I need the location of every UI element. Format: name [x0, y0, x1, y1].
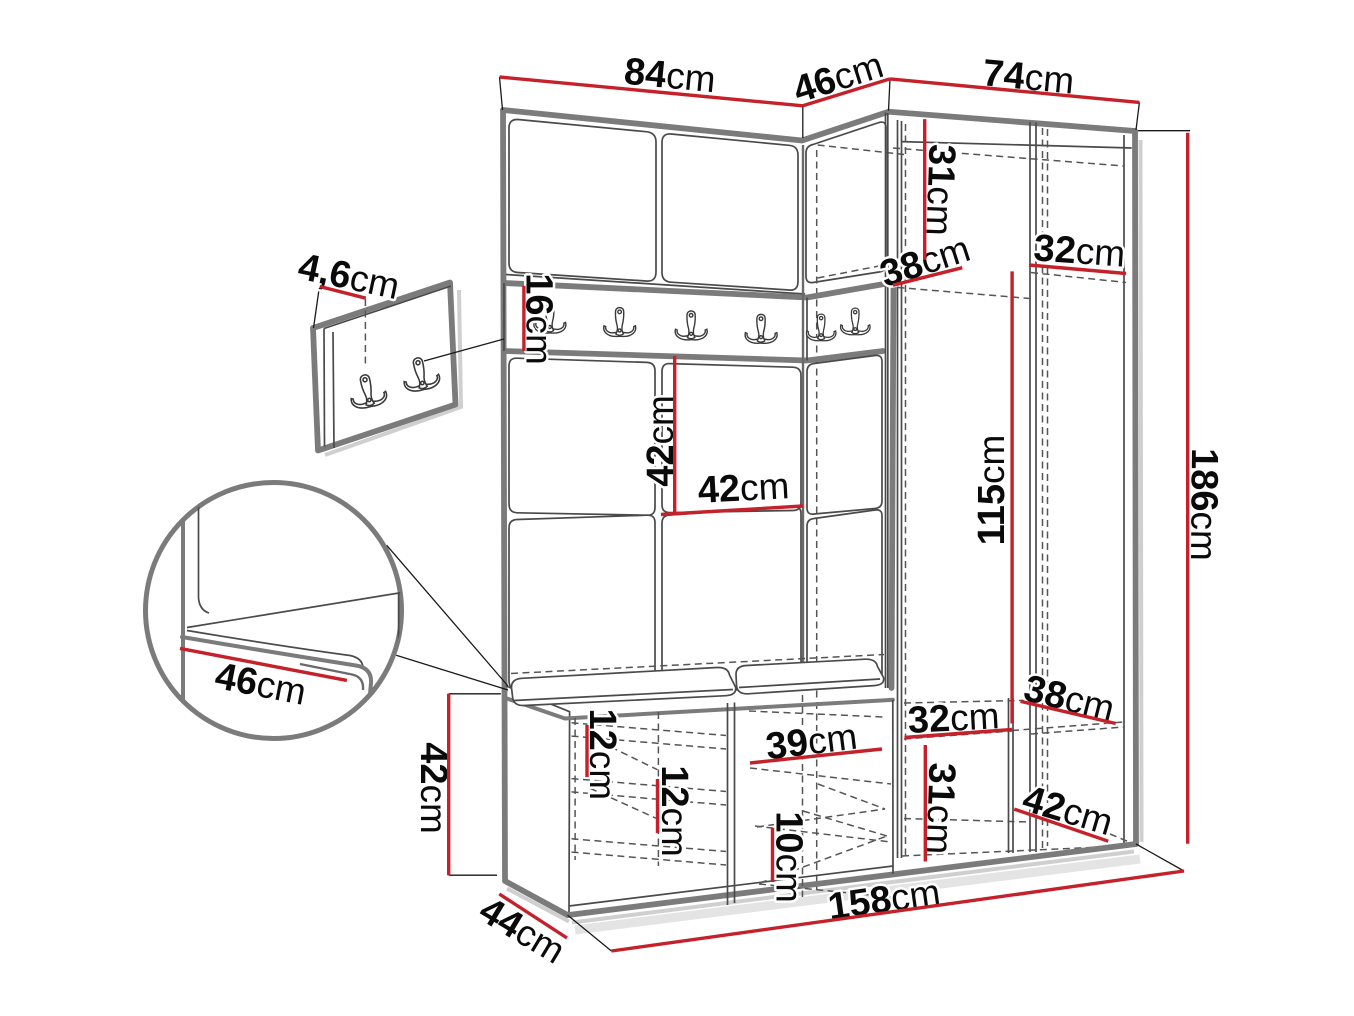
svg-text:42cm: 42cm	[697, 465, 791, 512]
svg-text:115cm: 115cm	[971, 435, 1013, 546]
